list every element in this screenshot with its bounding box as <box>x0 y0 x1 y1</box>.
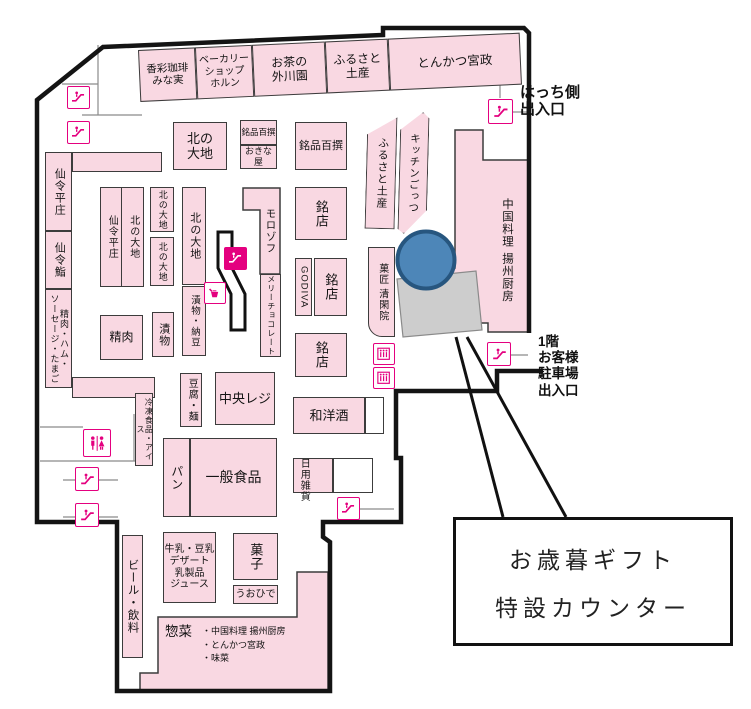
escalator-icon-left-1 <box>75 467 99 491</box>
room-kita-no-daichi-s1: 北の大地 <box>150 187 174 232</box>
callout-line1: お歳暮ギフト <box>509 541 677 575</box>
room-okinaya: おきな屋 <box>240 145 277 169</box>
callout-line2: 特設カウンター <box>495 589 691 623</box>
escalator-icon-topleft-1 <box>67 86 90 109</box>
sozai-detail: ・中国料理 揚州厨房 ・とんかつ宮政 ・味菜 <box>202 625 286 666</box>
room-beer-inryo: ビール・飲料 <box>122 535 143 658</box>
escalator-icon-left-2 <box>75 503 99 527</box>
room-kita-no-daichi-col: 北の大地 <box>121 187 144 287</box>
room-nichiyo-zakka-label: 日用雑貨 <box>295 449 311 511</box>
room-pan: パン <box>163 438 190 517</box>
room-senrei-heisho-inner: 仙令平庄 <box>100 187 122 287</box>
room-senrei-heisho-wall: 仙令平庄 <box>45 152 72 231</box>
restroom-icon <box>83 429 111 457</box>
room-meihin-hyakusen: 銘品百撰 <box>295 122 347 170</box>
room-godiva: GODIVA <box>295 258 312 316</box>
gift-counter-callout: お歳暮ギフト 特設カウンター <box>453 517 733 646</box>
hatchi-entrance-label: はっち側 出入口 <box>520 84 580 119</box>
room-kashi: 菓子 <box>233 533 278 580</box>
room-tonkatsu-miyamasa: とんかつ宮政 <box>388 33 522 91</box>
room-gyunyu-dessert: 牛乳・豆乳 デザート 乳製品 ジュース <box>163 532 216 603</box>
room-senrei-arm-top <box>72 152 162 172</box>
floor-map: 香彩珈琲 みな実ベーカリー ショップ ホルンお茶の 外川園ふるさと 土産とんかつ… <box>0 0 751 709</box>
room-senrei-zushi: 仙令鮨 <box>45 231 72 289</box>
escalator-icon-center <box>224 247 247 270</box>
escalator-icon-topleft-2 <box>67 121 90 144</box>
room-furusato-miyage-top: ふるさと 土産 <box>325 39 390 94</box>
room-furusato-miyage-col: ふるさと土産 <box>365 117 398 230</box>
escalator-icon-zakka <box>337 497 360 520</box>
room-bakery-shop-horn: ベーカリー ショップ ホルン <box>195 45 254 100</box>
room-nichiyo-zakka-annex <box>333 458 373 493</box>
room-kitchen-gottsu: キッチンごっつ <box>397 112 429 235</box>
escalator-icon-parking <box>487 342 511 366</box>
room-seiniku: 精肉 <box>100 315 143 360</box>
room-meihin-hyakusen-mini: 銘品百撰 <box>240 120 277 145</box>
elevator-icon-1 <box>373 343 395 365</box>
room-chuo-reji: 中央レジ <box>215 372 275 425</box>
gift-counter-area <box>397 271 482 337</box>
room-reito-ice: 冷凍食品・アイス <box>135 393 153 466</box>
room-ocha-togawaen: お茶の 外川園 <box>252 42 327 97</box>
room-kosai-coffee-minami: 香彩珈琲 みな実 <box>138 47 197 102</box>
escalator-icon-hatchi <box>488 99 513 124</box>
room-tofu-men: 豆腐・麺 <box>180 373 202 427</box>
room-kita-no-daichi-main: 北の 大地 <box>173 122 227 170</box>
room-meiten-2: 銘店 <box>314 258 347 316</box>
room-kita-no-daichi-tall: 北の大地 <box>182 187 206 285</box>
room-mary-chocolate: メリーチョコレート <box>260 274 281 357</box>
elevator-icon-2 <box>373 367 395 389</box>
room-kita-no-daichi-s2: 北の大地 <box>150 237 174 286</box>
room-morozoff-label: モロゾフ <box>261 191 279 271</box>
room-wayoshu: 和洋酒 <box>293 397 365 434</box>
parking-entrance-label: 1階 お客様 駐車場 出入口 <box>538 334 579 399</box>
room-uohide: うおひで <box>233 585 278 604</box>
room-tsukemono: 漬物 <box>152 312 174 357</box>
top-shop-strip: 香彩珈琲 みな実ベーカリー ショップ ホルンお茶の 外川園ふるさと 土産とんかつ… <box>138 33 522 102</box>
room-ippan-shokuhin: 一般食品 <box>190 438 277 517</box>
highlight-circle <box>398 232 455 289</box>
room-meiten-1: 銘店 <box>295 187 347 240</box>
room-wayoshu-annex <box>365 397 384 434</box>
room-meiten-3: 銘店 <box>295 333 347 377</box>
sozai-title: 惣菜 <box>165 620 192 640</box>
room-kasho-seikanin: 菓匠 清閑院 <box>368 247 395 337</box>
room-tsukemono-natto: 漬物・納豆 <box>182 286 206 356</box>
room-chugoku-yoshu-chubo-label: 中国料理 揚州厨房 <box>498 166 516 334</box>
room-meat-ham-sausage-eggs: 精肉・ハム・ ソーセージ・たまご <box>45 289 72 388</box>
coffee-icon <box>204 282 226 304</box>
